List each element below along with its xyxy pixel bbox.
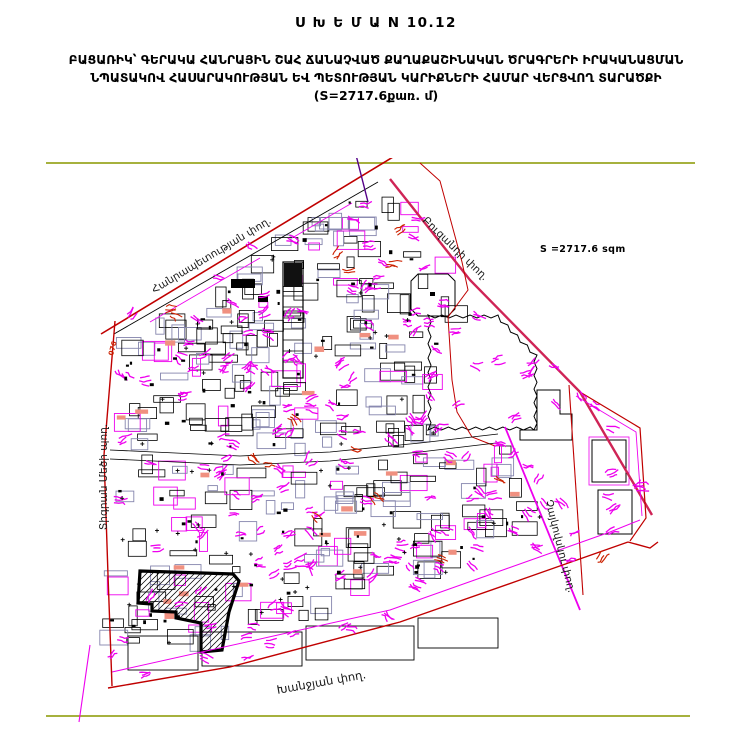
east-edge-red-line <box>580 392 646 541</box>
street-label-tchaikovsky: Չայկովսկու փող. <box>543 499 578 594</box>
map-area-label: S =2717.6 sqm <box>540 244 626 255</box>
octagon-center-mark <box>430 292 435 296</box>
bottom-building-4 <box>418 618 498 648</box>
street-label-khanjyan: Խանջյան փող. <box>276 667 367 696</box>
major-buildings <box>128 262 632 670</box>
dark-building-block <box>231 279 255 288</box>
east-parcel-magenta-outline <box>589 437 629 485</box>
cadastral-map: Հանրապետության փող. Բուզանդի փող. Տիգրան… <box>0 0 752 733</box>
ladder-building-rungs <box>283 296 303 362</box>
ladder-building-dark-top <box>284 263 302 287</box>
hanrapetutyan-boundary-line <box>114 182 378 334</box>
target-parcel-hatched <box>138 571 239 652</box>
street-label-tigran-mets: Տիգրան Մեծի պող. <box>98 424 110 530</box>
middle-street-line-north <box>110 434 498 456</box>
tigran-mets-magenta-line <box>79 645 90 722</box>
bottom-building-1 <box>128 636 198 670</box>
map-edge-label: 076 <box>107 340 119 356</box>
l-shaped-parcel <box>520 390 572 440</box>
middle-street-line-south <box>110 443 496 465</box>
hanrapetutyan-street-line <box>101 157 393 334</box>
buzandi-west-red-line <box>420 163 495 446</box>
